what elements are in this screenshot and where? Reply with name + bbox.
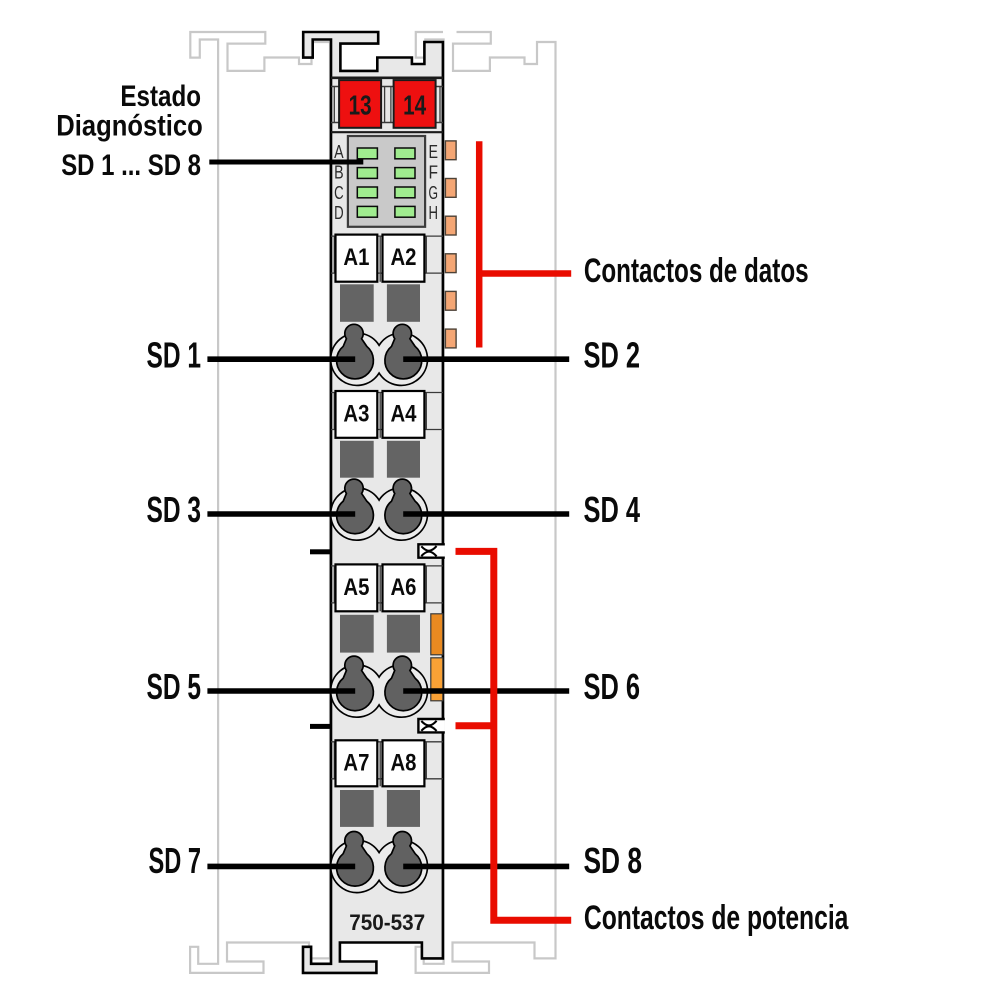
svg-text:SD 1 ... SD 8: SD 1 ... SD 8 xyxy=(61,149,201,182)
svg-text:A6: A6 xyxy=(391,574,417,601)
svg-text:SD 6: SD 6 xyxy=(584,666,641,707)
svg-text:A2: A2 xyxy=(391,244,417,271)
svg-text:13: 13 xyxy=(349,89,372,120)
svg-text:14: 14 xyxy=(403,89,426,120)
svg-text:H: H xyxy=(428,203,438,223)
svg-text:G: G xyxy=(428,183,438,203)
svg-text:750-537: 750-537 xyxy=(349,910,425,935)
svg-text:A: A xyxy=(334,142,344,162)
svg-text:Contactos de datos: Contactos de datos xyxy=(584,252,809,290)
svg-text:SD 8: SD 8 xyxy=(584,840,643,881)
svg-text:A3: A3 xyxy=(343,400,369,427)
svg-text:F: F xyxy=(428,162,438,182)
svg-text:SD 2: SD 2 xyxy=(584,335,641,376)
svg-text:D: D xyxy=(334,203,344,223)
svg-text:SD 7: SD 7 xyxy=(149,840,202,881)
svg-text:Diagnóstico: Diagnóstico xyxy=(56,110,202,143)
svg-text:A1: A1 xyxy=(343,244,369,271)
svg-text:SD 5: SD 5 xyxy=(147,666,202,707)
svg-text:SD 3: SD 3 xyxy=(147,489,202,530)
svg-text:SD 4: SD 4 xyxy=(584,489,641,530)
svg-text:E: E xyxy=(428,142,438,162)
svg-text:A5: A5 xyxy=(343,574,369,601)
svg-text:Contactos de potencia: Contactos de potencia xyxy=(584,899,849,937)
svg-text:A7: A7 xyxy=(343,749,369,776)
svg-text:A8: A8 xyxy=(391,749,417,776)
svg-text:SD 1: SD 1 xyxy=(147,335,202,376)
svg-text:A4: A4 xyxy=(391,400,417,427)
svg-text:B: B xyxy=(334,162,344,182)
svg-text:C: C xyxy=(334,183,344,203)
svg-text:Estado: Estado xyxy=(120,80,201,113)
